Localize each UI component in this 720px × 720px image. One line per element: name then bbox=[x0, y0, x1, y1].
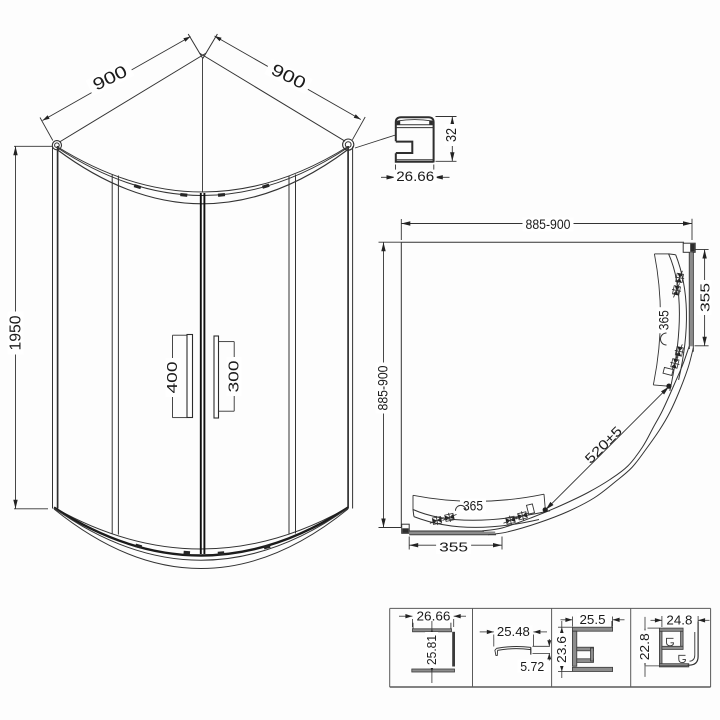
svg-text:400: 400 bbox=[164, 362, 181, 394]
svg-text:355: 355 bbox=[439, 540, 468, 555]
svg-text:355: 355 bbox=[697, 283, 712, 312]
svg-text:5.72: 5.72 bbox=[520, 659, 544, 674]
svg-text:32: 32 bbox=[443, 128, 460, 142]
svg-text:885-900: 885-900 bbox=[375, 366, 390, 411]
svg-text:26.66: 26.66 bbox=[396, 169, 434, 184]
svg-text:300: 300 bbox=[226, 361, 243, 393]
svg-text:26.66: 26.66 bbox=[417, 608, 451, 623]
svg-text:1950: 1950 bbox=[7, 315, 24, 350]
svg-text:24.8: 24.8 bbox=[666, 613, 692, 628]
svg-text:25.81: 25.81 bbox=[424, 635, 439, 665]
svg-text:23.6: 23.6 bbox=[554, 636, 569, 663]
svg-text:25.48: 25.48 bbox=[497, 624, 530, 639]
svg-text:365: 365 bbox=[656, 310, 672, 330]
svg-text:885-900: 885-900 bbox=[526, 217, 571, 232]
svg-text:25.5: 25.5 bbox=[580, 612, 606, 627]
svg-text:22.8: 22.8 bbox=[637, 633, 652, 660]
svg-text:365: 365 bbox=[463, 497, 483, 513]
